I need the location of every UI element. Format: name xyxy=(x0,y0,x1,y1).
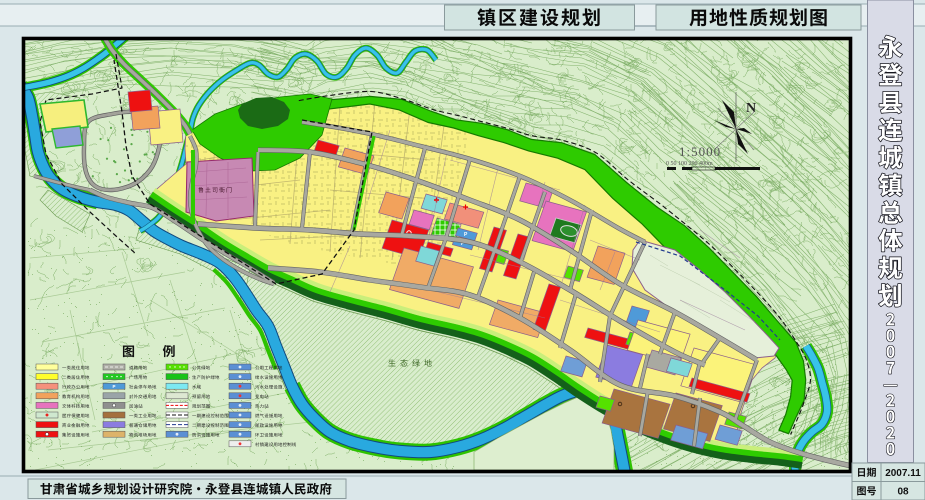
svg-text:2007.11: 2007.11 xyxy=(885,468,921,479)
svg-text:08: 08 xyxy=(897,487,909,498)
svg-text:P: P xyxy=(113,384,116,389)
svg-text:0 50 100 200: 0 50 100 200 400m xyxy=(666,161,713,167)
svg-text:N: N xyxy=(746,101,756,116)
svg-text:1:5000: 1:5000 xyxy=(679,144,721,159)
